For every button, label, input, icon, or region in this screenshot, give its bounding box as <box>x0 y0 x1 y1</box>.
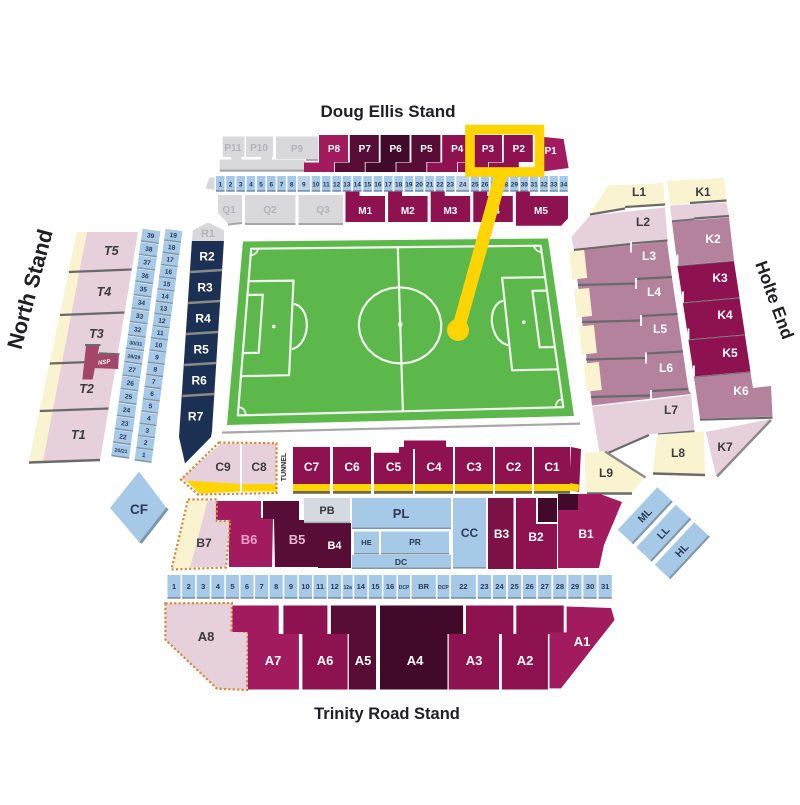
svg-text:12a: 12a <box>344 585 353 591</box>
svg-text:K4: K4 <box>717 308 733 322</box>
svg-text:2: 2 <box>187 582 191 591</box>
svg-text:9: 9 <box>302 182 306 189</box>
svg-text:B5: B5 <box>289 532 306 547</box>
svg-text:C4: C4 <box>426 460 442 474</box>
svg-text:Trinity Road Stand: Trinity Road Stand <box>314 705 460 723</box>
svg-text:28: 28 <box>556 582 564 591</box>
svg-text:L7: L7 <box>664 403 678 417</box>
svg-text:TUNNEL: TUNNEL <box>281 452 288 481</box>
svg-text:26: 26 <box>126 380 135 388</box>
svg-text:22: 22 <box>119 434 128 442</box>
svg-text:DCP: DCP <box>399 585 410 591</box>
svg-text:32: 32 <box>540 182 548 189</box>
svg-text:13: 13 <box>343 182 351 189</box>
svg-text:T2: T2 <box>79 382 94 396</box>
svg-text:L5: L5 <box>653 322 667 336</box>
svg-text:P1: P1 <box>544 146 557 157</box>
svg-text:14: 14 <box>354 182 362 189</box>
svg-text:1: 1 <box>218 182 222 189</box>
svg-text:T1: T1 <box>71 428 86 442</box>
svg-text:P11: P11 <box>224 143 242 154</box>
svg-text:BR: BR <box>418 582 429 591</box>
svg-text:33: 33 <box>135 313 144 321</box>
svg-text:31: 31 <box>530 182 538 189</box>
svg-text:HE: HE <box>361 538 371 547</box>
svg-text:35: 35 <box>139 286 148 294</box>
svg-text:A7: A7 <box>265 653 282 668</box>
svg-text:31: 31 <box>601 582 609 591</box>
svg-text:K2: K2 <box>705 232 721 246</box>
svg-text:29: 29 <box>571 582 579 591</box>
svg-text:T5: T5 <box>104 244 120 258</box>
svg-text:M1: M1 <box>358 206 372 217</box>
svg-text:17: 17 <box>385 182 393 189</box>
svg-text:Q1: Q1 <box>222 205 236 216</box>
svg-text:DC: DC <box>395 557 407 567</box>
svg-text:12: 12 <box>333 182 341 189</box>
svg-text:C1: C1 <box>544 460 560 474</box>
svg-text:8: 8 <box>290 182 294 189</box>
svg-text:14: 14 <box>357 582 366 591</box>
svg-text:8: 8 <box>274 582 278 591</box>
svg-text:9: 9 <box>289 582 293 591</box>
svg-text:PL: PL <box>393 506 410 521</box>
svg-text:16: 16 <box>164 268 173 276</box>
svg-text:38: 38 <box>145 246 154 254</box>
svg-text:C2: C2 <box>506 460 522 474</box>
svg-text:C5: C5 <box>386 460 402 474</box>
svg-text:L4: L4 <box>647 285 661 299</box>
svg-text:30: 30 <box>521 182 529 189</box>
svg-text:R1: R1 <box>201 228 215 240</box>
svg-text:A5: A5 <box>355 653 372 668</box>
svg-text:A6: A6 <box>317 653 334 668</box>
svg-text:T3: T3 <box>89 327 104 341</box>
svg-text:23: 23 <box>480 582 488 591</box>
svg-text:C9: C9 <box>215 460 231 474</box>
svg-text:22: 22 <box>436 182 444 189</box>
svg-text:P5: P5 <box>420 144 433 155</box>
svg-text:37: 37 <box>143 259 152 267</box>
svg-text:25: 25 <box>510 582 518 591</box>
svg-text:R6: R6 <box>192 374 208 388</box>
svg-text:P4: P4 <box>451 144 464 155</box>
svg-text:L6: L6 <box>659 361 673 375</box>
svg-text:A1: A1 <box>574 634 591 649</box>
svg-text:11: 11 <box>323 182 330 189</box>
svg-text:A2: A2 <box>517 653 534 668</box>
svg-text:P10: P10 <box>250 143 268 154</box>
svg-text:27: 27 <box>541 582 549 591</box>
svg-text:5: 5 <box>259 182 263 189</box>
svg-text:K6: K6 <box>733 384 749 398</box>
svg-text:10: 10 <box>301 582 309 591</box>
svg-text:K5: K5 <box>722 346 738 360</box>
svg-text:A3: A3 <box>466 653 483 668</box>
svg-text:DCP: DCP <box>438 585 449 591</box>
svg-text:K3: K3 <box>712 271 728 285</box>
svg-text:P2: P2 <box>513 144 526 155</box>
svg-text:K7: K7 <box>717 440 733 454</box>
svg-text:B2: B2 <box>528 530 544 544</box>
svg-text:15: 15 <box>364 182 372 189</box>
svg-text:18: 18 <box>168 244 177 252</box>
svg-text:6: 6 <box>269 182 273 189</box>
svg-text:34: 34 <box>560 182 568 189</box>
svg-text:23: 23 <box>447 182 455 189</box>
svg-text:A8: A8 <box>198 629 215 644</box>
svg-text:29: 29 <box>511 182 519 189</box>
svg-text:30: 30 <box>586 582 594 591</box>
svg-text:25: 25 <box>471 182 479 189</box>
svg-text:33: 33 <box>550 182 558 189</box>
svg-text:P7: P7 <box>359 144 372 155</box>
svg-text:34: 34 <box>137 299 146 307</box>
svg-text:23: 23 <box>121 420 130 428</box>
svg-text:2: 2 <box>229 182 233 189</box>
svg-text:17: 17 <box>166 256 175 264</box>
svg-text:24: 24 <box>459 182 467 189</box>
svg-text:L1: L1 <box>632 185 646 199</box>
svg-text:C8: C8 <box>251 460 267 474</box>
svg-text:22: 22 <box>459 582 467 591</box>
svg-text:Q3: Q3 <box>316 205 330 216</box>
svg-text:20: 20 <box>416 182 424 189</box>
svg-text:Doug Ellis Stand: Doug Ellis Stand <box>320 102 455 121</box>
svg-text:R3: R3 <box>197 281 213 295</box>
svg-text:11: 11 <box>156 330 164 338</box>
svg-text:36: 36 <box>141 273 150 281</box>
svg-text:PR: PR <box>409 537 421 547</box>
svg-text:19: 19 <box>405 182 413 189</box>
svg-text:3: 3 <box>239 182 243 189</box>
svg-text:11: 11 <box>316 582 324 591</box>
svg-text:12: 12 <box>158 317 167 325</box>
svg-text:B7: B7 <box>196 536 212 550</box>
svg-text:3: 3 <box>201 582 205 591</box>
svg-text:PB: PB <box>319 505 334 517</box>
svg-text:26: 26 <box>526 582 534 591</box>
svg-text:19: 19 <box>169 232 178 240</box>
svg-text:B3: B3 <box>494 527 510 541</box>
svg-text:24: 24 <box>495 582 504 591</box>
svg-text:7: 7 <box>280 182 284 189</box>
svg-text:M5: M5 <box>534 206 548 217</box>
svg-text:M2: M2 <box>401 206 415 217</box>
svg-text:L2: L2 <box>636 215 650 229</box>
svg-text:T4: T4 <box>97 285 112 299</box>
svg-text:A4: A4 <box>407 653 424 668</box>
svg-text:10: 10 <box>154 342 163 350</box>
svg-text:32: 32 <box>134 326 143 334</box>
svg-text:18: 18 <box>395 182 403 189</box>
svg-text:6: 6 <box>245 582 249 591</box>
svg-text:P3: P3 <box>482 144 495 155</box>
svg-text:CC: CC <box>461 526 479 540</box>
svg-text:15: 15 <box>371 582 379 591</box>
svg-text:B6: B6 <box>241 532 258 547</box>
svg-text:25: 25 <box>124 393 133 401</box>
svg-text:1: 1 <box>172 582 176 591</box>
svg-text:CF: CF <box>130 502 148 517</box>
svg-text:12: 12 <box>331 582 339 591</box>
svg-text:R2: R2 <box>199 250 215 264</box>
svg-text:39: 39 <box>147 232 156 240</box>
svg-text:Q2: Q2 <box>263 205 277 216</box>
svg-text:10: 10 <box>312 182 320 189</box>
svg-text:R5: R5 <box>194 343 210 357</box>
svg-text:C7: C7 <box>304 460 320 474</box>
svg-text:P6: P6 <box>389 144 402 155</box>
svg-text:L8: L8 <box>671 446 685 460</box>
svg-text:P9: P9 <box>291 144 304 155</box>
svg-text:K1: K1 <box>695 185 711 199</box>
svg-text:L3: L3 <box>642 249 656 263</box>
svg-text:16: 16 <box>374 182 382 189</box>
svg-text:15: 15 <box>163 281 172 289</box>
svg-text:21: 21 <box>426 182 434 189</box>
svg-text:L9: L9 <box>599 466 613 480</box>
svg-text:M3: M3 <box>443 206 457 217</box>
svg-text:C6: C6 <box>344 460 360 474</box>
svg-text:P8: P8 <box>328 144 341 155</box>
svg-text:C3: C3 <box>466 460 482 474</box>
svg-text:4: 4 <box>249 182 253 189</box>
svg-text:16: 16 <box>386 582 394 591</box>
svg-text:24: 24 <box>122 407 131 415</box>
svg-text:B4: B4 <box>327 540 342 552</box>
svg-text:27: 27 <box>128 366 137 374</box>
svg-text:B1: B1 <box>578 527 594 541</box>
svg-text:R4: R4 <box>195 312 211 326</box>
svg-text:26: 26 <box>481 182 489 189</box>
svg-text:5: 5 <box>230 582 234 591</box>
svg-text:R7: R7 <box>188 410 204 424</box>
svg-text:14: 14 <box>161 293 170 301</box>
svg-text:7: 7 <box>260 582 264 591</box>
svg-text:13: 13 <box>159 305 168 313</box>
